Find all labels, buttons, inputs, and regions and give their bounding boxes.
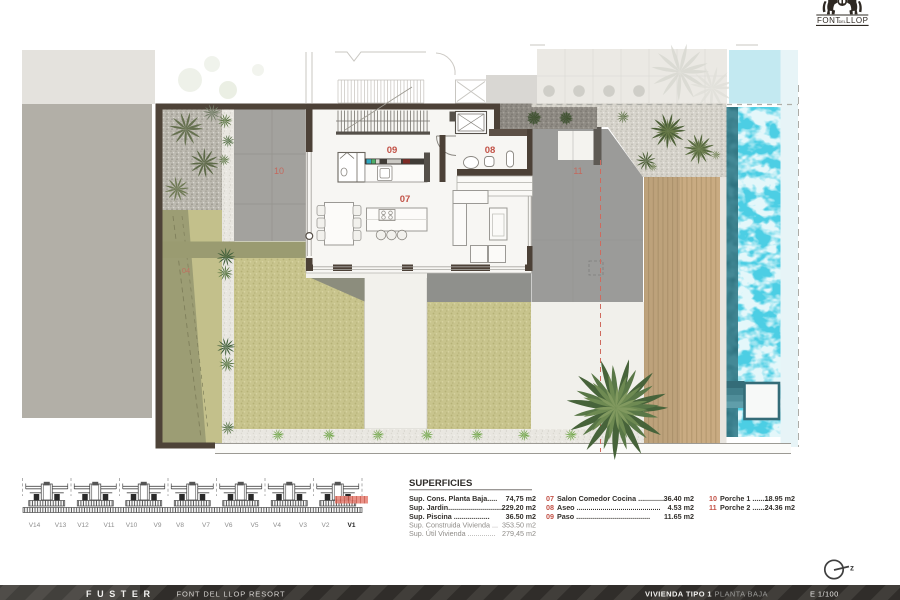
svg-text:V14: V14: [29, 522, 41, 529]
svg-text:Porche 1 .........: Porche 1 .........: [720, 494, 770, 503]
svg-text:11.65 m2: 11.65 m2: [664, 512, 694, 521]
svg-text:74,75 m2: 74,75 m2: [506, 494, 536, 503]
svg-text:Sup. Cons. Planta Baja.....: Sup. Cons. Planta Baja.....: [409, 494, 497, 503]
svg-text:279,45 m2: 279,45 m2: [502, 529, 536, 538]
svg-text:Sup. Jardin...................: Sup. Jardin............................: [409, 503, 504, 512]
svg-text:DEL: DEL: [839, 20, 846, 24]
svg-text:V3: V3: [299, 522, 307, 529]
svg-text:Sup. Útil Vivienda ...........: Sup. Útil Vivienda ..............: [409, 529, 496, 538]
svg-text:V2: V2: [322, 522, 330, 529]
svg-text:V8: V8: [176, 522, 184, 529]
svg-text:V4: V4: [273, 522, 281, 529]
svg-text:11: 11: [573, 166, 582, 176]
svg-text:V10: V10: [126, 522, 138, 529]
svg-text:V7: V7: [202, 522, 210, 529]
svg-text:z: z: [850, 564, 854, 573]
svg-text:09: 09: [546, 512, 554, 521]
svg-text:07: 07: [400, 194, 411, 205]
svg-text:SUPERFICIES: SUPERFICIES: [409, 478, 472, 489]
svg-text:E 1/100: E 1/100: [810, 590, 839, 599]
svg-text:36.40 m2: 36.40 m2: [664, 494, 694, 503]
svg-text:VIVIENDA TIPO 1 PLANTA BAJA: VIVIENDA TIPO 1 PLANTA BAJA: [645, 590, 768, 599]
svg-text:V6: V6: [225, 522, 233, 529]
svg-text:11: 11: [709, 503, 717, 512]
svg-text:V1: V1: [348, 522, 356, 529]
svg-text:FUSTER: FUSTER: [86, 589, 156, 599]
svg-text:V11: V11: [103, 522, 114, 529]
svg-text:V12: V12: [77, 522, 89, 529]
svg-text:10: 10: [709, 494, 717, 503]
svg-text:18.95 m2: 18.95 m2: [765, 494, 795, 503]
svg-text:09: 09: [387, 145, 398, 156]
svg-text:FONT: FONT: [817, 16, 841, 25]
svg-text:LLOP: LLOP: [846, 16, 868, 25]
svg-text:V13: V13: [55, 522, 67, 529]
svg-text:V5: V5: [251, 522, 259, 529]
svg-text:4.53 m2: 4.53 m2: [668, 503, 694, 512]
svg-text:229.20 m2: 229.20 m2: [502, 503, 536, 512]
svg-text:10: 10: [274, 166, 284, 176]
svg-text:04: 04: [182, 266, 190, 275]
svg-text:Salon Comedor Cocina .........: Salon Comedor Cocina ..............: [557, 494, 666, 503]
svg-text:FONT DEL LLOP RESORT: FONT DEL LLOP RESORT: [177, 590, 286, 599]
svg-text:24.36 m2: 24.36 m2: [765, 503, 795, 512]
svg-text:Aseo .........................: Aseo ...................................…: [557, 503, 660, 512]
svg-text:08: 08: [546, 503, 554, 512]
svg-text:08: 08: [485, 145, 496, 156]
svg-text:07: 07: [546, 494, 554, 503]
svg-text:Porche 2 .......: Porche 2 .......: [720, 503, 766, 512]
svg-text:Paso .........................: Paso ...................................…: [557, 512, 650, 521]
svg-text:V9: V9: [154, 522, 162, 529]
